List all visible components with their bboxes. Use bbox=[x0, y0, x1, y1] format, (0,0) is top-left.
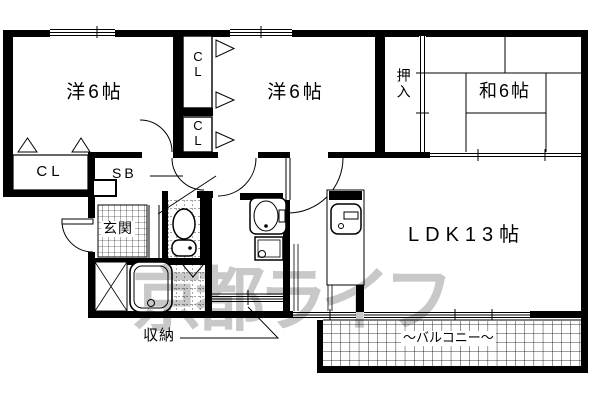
window-top-left bbox=[50, 26, 115, 38]
room-label-oshiire: 押入 bbox=[395, 68, 411, 100]
closet-label-left: CL bbox=[25, 164, 75, 181]
balcony-label-prefix: 〜 bbox=[403, 330, 416, 345]
sliding-door-japanese-ldk bbox=[430, 149, 581, 161]
closet-label-lower: C L bbox=[186, 119, 210, 148]
room-label-western2: 洋6帖 bbox=[252, 82, 340, 103]
storage-label: 収納 bbox=[143, 328, 175, 345]
pipe-space bbox=[95, 262, 127, 311]
shoe-box-label: SB bbox=[112, 166, 137, 182]
window-kitchen-bottom bbox=[293, 309, 356, 320]
closet-label-upper: C L bbox=[186, 50, 210, 79]
storage-sliding-door bbox=[212, 290, 283, 305]
window-ldk-bottom bbox=[364, 309, 530, 320]
room-label-western1: 洋6帖 bbox=[55, 82, 135, 103]
balcony-label: 〜バルコニー〜 bbox=[401, 331, 496, 346]
floor-plan: 洋6帖 洋6帖 押入 和6帖 C L C L CL SB 玄関 LDK13帖 収… bbox=[0, 0, 600, 400]
floor-plan-drawing bbox=[0, 0, 600, 400]
balcony-label-text: バルコニー bbox=[416, 330, 481, 345]
washing-machine-pan bbox=[255, 237, 283, 260]
room-label-japanese: 和6帖 bbox=[464, 81, 546, 101]
bath-tiles bbox=[168, 262, 205, 311]
kitchen-counter bbox=[294, 190, 364, 311]
bathtub bbox=[130, 262, 172, 312]
entrance-door-leaf bbox=[62, 219, 93, 224]
shoe-cabinet bbox=[93, 180, 116, 196]
toilet bbox=[172, 209, 196, 256]
window-top-middle bbox=[230, 26, 292, 38]
sliding-door-oshiire bbox=[416, 36, 429, 152]
wash-basin bbox=[250, 198, 286, 234]
entrance-label: 玄関 bbox=[101, 221, 135, 237]
room-label-ldk: LDK13帖 bbox=[408, 224, 525, 246]
balcony-label-suffix: 〜 bbox=[481, 330, 494, 345]
